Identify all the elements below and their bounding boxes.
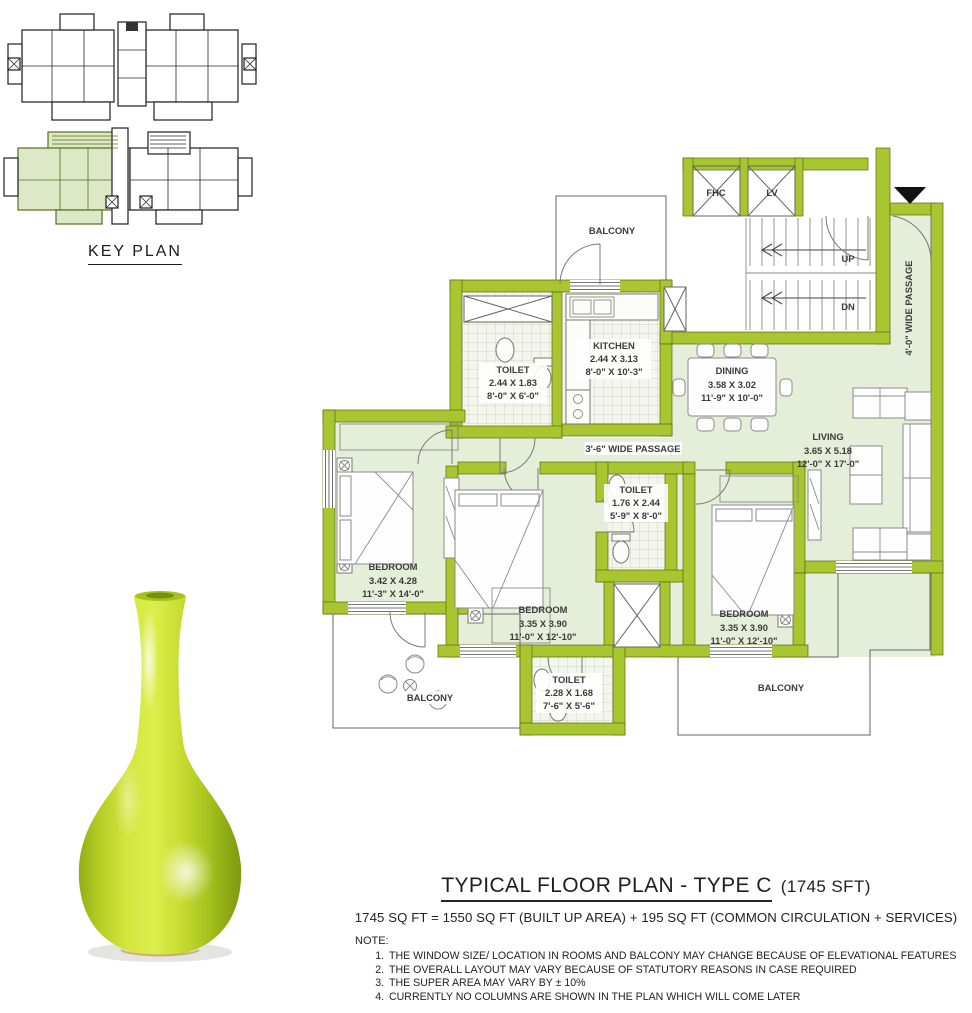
svg-text:BEDROOM: BEDROOM (720, 608, 769, 619)
bed-2 (455, 490, 543, 608)
stairs-down-label: DN (841, 301, 855, 312)
key-plan-drawing (4, 14, 256, 224)
footer: TYPICAL FLOOR PLAN - TYPE C(1745 SFT) 17… (345, 874, 967, 1005)
svg-text:3.35 X 3.90: 3.35 X 3.90 (519, 618, 567, 629)
svg-text:3.42 X 4.28: 3.42 X 4.28 (369, 575, 417, 586)
svg-text:8'-0" X 10'-3": 8'-0" X 10'-3" (585, 366, 642, 377)
svg-text:1.76 X 2.44: 1.76 X 2.44 (612, 497, 661, 508)
svg-text:KITCHEN: KITCHEN (593, 340, 635, 351)
svg-text:2.28 X 1.68: 2.28 X 1.68 (545, 687, 593, 698)
area-equation: 1745 SQ FT = 1550 SQ FT (BUILT UP AREA) … (345, 910, 967, 925)
note-item: THE OVERALL LAYOUT MAY VARY BECAUSE OF S… (387, 964, 967, 977)
svg-text:3.35 X 3.90: 3.35 X 3.90 (720, 622, 768, 633)
room-label-balcony-left: BALCONY (396, 691, 464, 704)
stairs-up-label: UP (841, 253, 854, 264)
svg-text:11'-3" X 14'-0": 11'-3" X 14'-0" (362, 588, 424, 599)
note-item: THE WINDOW SIZE/ LOCATION IN ROOMS AND B… (387, 950, 967, 963)
svg-text:11'-0" X 12'-10": 11'-0" X 12'-10" (509, 631, 576, 642)
note-item: THE SUPER AREA MAY VARY BY ± 10% (387, 977, 967, 990)
key-plan-upper-tower (8, 14, 256, 120)
room-label-bedroom-3: BEDROOM 3.35 X 3.90 11'-0" X 12'-10" (710, 608, 777, 646)
fhc-label: FHC (706, 187, 725, 198)
svg-text:BALCONY: BALCONY (758, 682, 805, 693)
svg-text:BALCONY: BALCONY (589, 225, 636, 236)
svg-text:5'-9" X 8'-0": 5'-9" X 8'-0" (610, 510, 662, 521)
note-heading: NOTE: (355, 935, 389, 947)
svg-text:3'-6" WIDE PASSAGE: 3'-6" WIDE PASSAGE (585, 443, 680, 454)
key-plan-title: KEY PLAN (40, 243, 230, 265)
svg-text:BEDROOM: BEDROOM (519, 604, 568, 615)
room-label-balcony-top: BALCONY (577, 224, 647, 237)
bed-1 (337, 472, 413, 564)
lift-label: LV (766, 187, 778, 198)
room-label-balcony-right: BALCONY (747, 681, 815, 694)
entry-arrow-icon (894, 187, 926, 204)
svg-text:8'-0" X 6'-0": 8'-0" X 6'-0" (487, 390, 539, 401)
plan-canvas: BALCONY KITCHEN 2.44 X 3.13 8'-0" X 10'-… (0, 0, 972, 1013)
svg-text:BEDROOM: BEDROOM (369, 561, 418, 572)
room-label-toilet-2: TOILET 1.76 X 2.44 5'-9" X 8'-0" (604, 484, 668, 522)
room-label-toilet-3: TOILET 2.28 X 1.68 7'-6" X 5'-6" (536, 673, 602, 713)
svg-text:11'-0" X 12'-10": 11'-0" X 12'-10" (710, 635, 777, 646)
room-label-kitchen: KITCHEN 2.44 X 3.13 8'-0" X 10'-3" (577, 339, 651, 379)
floor-plan-page: BALCONY KITCHEN 2.44 X 3.13 8'-0" X 10'-… (0, 0, 972, 1013)
room-label-bedroom-1: BEDROOM 3.42 X 4.28 11'-3" X 14'-0" (362, 561, 424, 599)
svg-text:LIVING: LIVING (812, 431, 843, 442)
balcony-top-area (556, 196, 666, 282)
room-label-toilet-1: TOILET 2.44 X 1.83 8'-0" X 6'-0" (479, 363, 547, 403)
page-title: TYPICAL FLOOR PLAN - TYPE C(1745 SFT) (345, 874, 967, 898)
svg-text:2.44 X 3.13: 2.44 X 3.13 (590, 353, 638, 364)
svg-text:12'-0" X 17'-0": 12'-0" X 17'-0" (797, 458, 859, 469)
svg-text:DINING: DINING (716, 365, 749, 376)
main-floor-plan: BALCONY KITCHEN 2.44 X 3.13 8'-0" X 10'-… (323, 148, 943, 735)
svg-text:3.58 X 3.02: 3.58 X 3.02 (708, 379, 756, 390)
plan-title-text: TYPICAL FLOOR PLAN - TYPE C (441, 874, 772, 902)
key-plan-lower-tower (4, 128, 252, 224)
bed-3 (712, 505, 794, 615)
svg-text:BALCONY: BALCONY (407, 692, 454, 703)
svg-text:2.44 X 1.83: 2.44 X 1.83 (489, 377, 537, 388)
note-item: CURRENTLY NO COLUMNS ARE SHOWN IN THE PL… (387, 991, 967, 1004)
svg-text:TOILET: TOILET (619, 484, 652, 495)
svg-text:TOILET: TOILET (496, 364, 529, 375)
plan-title-area: (1745 SFT) (781, 877, 871, 896)
passage-inner-label: 3'-6" WIDE PASSAGE (584, 442, 682, 455)
vase-photo (79, 591, 241, 962)
tv-unit (808, 470, 821, 540)
svg-text:7'-6" X 5'-6": 7'-6" X 5'-6" (543, 700, 595, 711)
passage-outer-label: 4'-0" WIDE PASSAGE (903, 260, 914, 355)
svg-text:3.65 X 5.18: 3.65 X 5.18 (804, 445, 852, 456)
room-label-bedroom-2: BEDROOM 3.35 X 3.90 11'-0" X 12'-10" (509, 604, 576, 642)
notes-block: NOTE: THE WINDOW SIZE/ LOCATION IN ROOMS… (355, 935, 967, 1004)
svg-text:TOILET: TOILET (552, 674, 585, 685)
vase-body (79, 592, 241, 956)
notes-list: THE WINDOW SIZE/ LOCATION IN ROOMS AND B… (355, 950, 967, 1004)
svg-text:11'-9" X 10'-0": 11'-9" X 10'-0" (701, 392, 763, 403)
